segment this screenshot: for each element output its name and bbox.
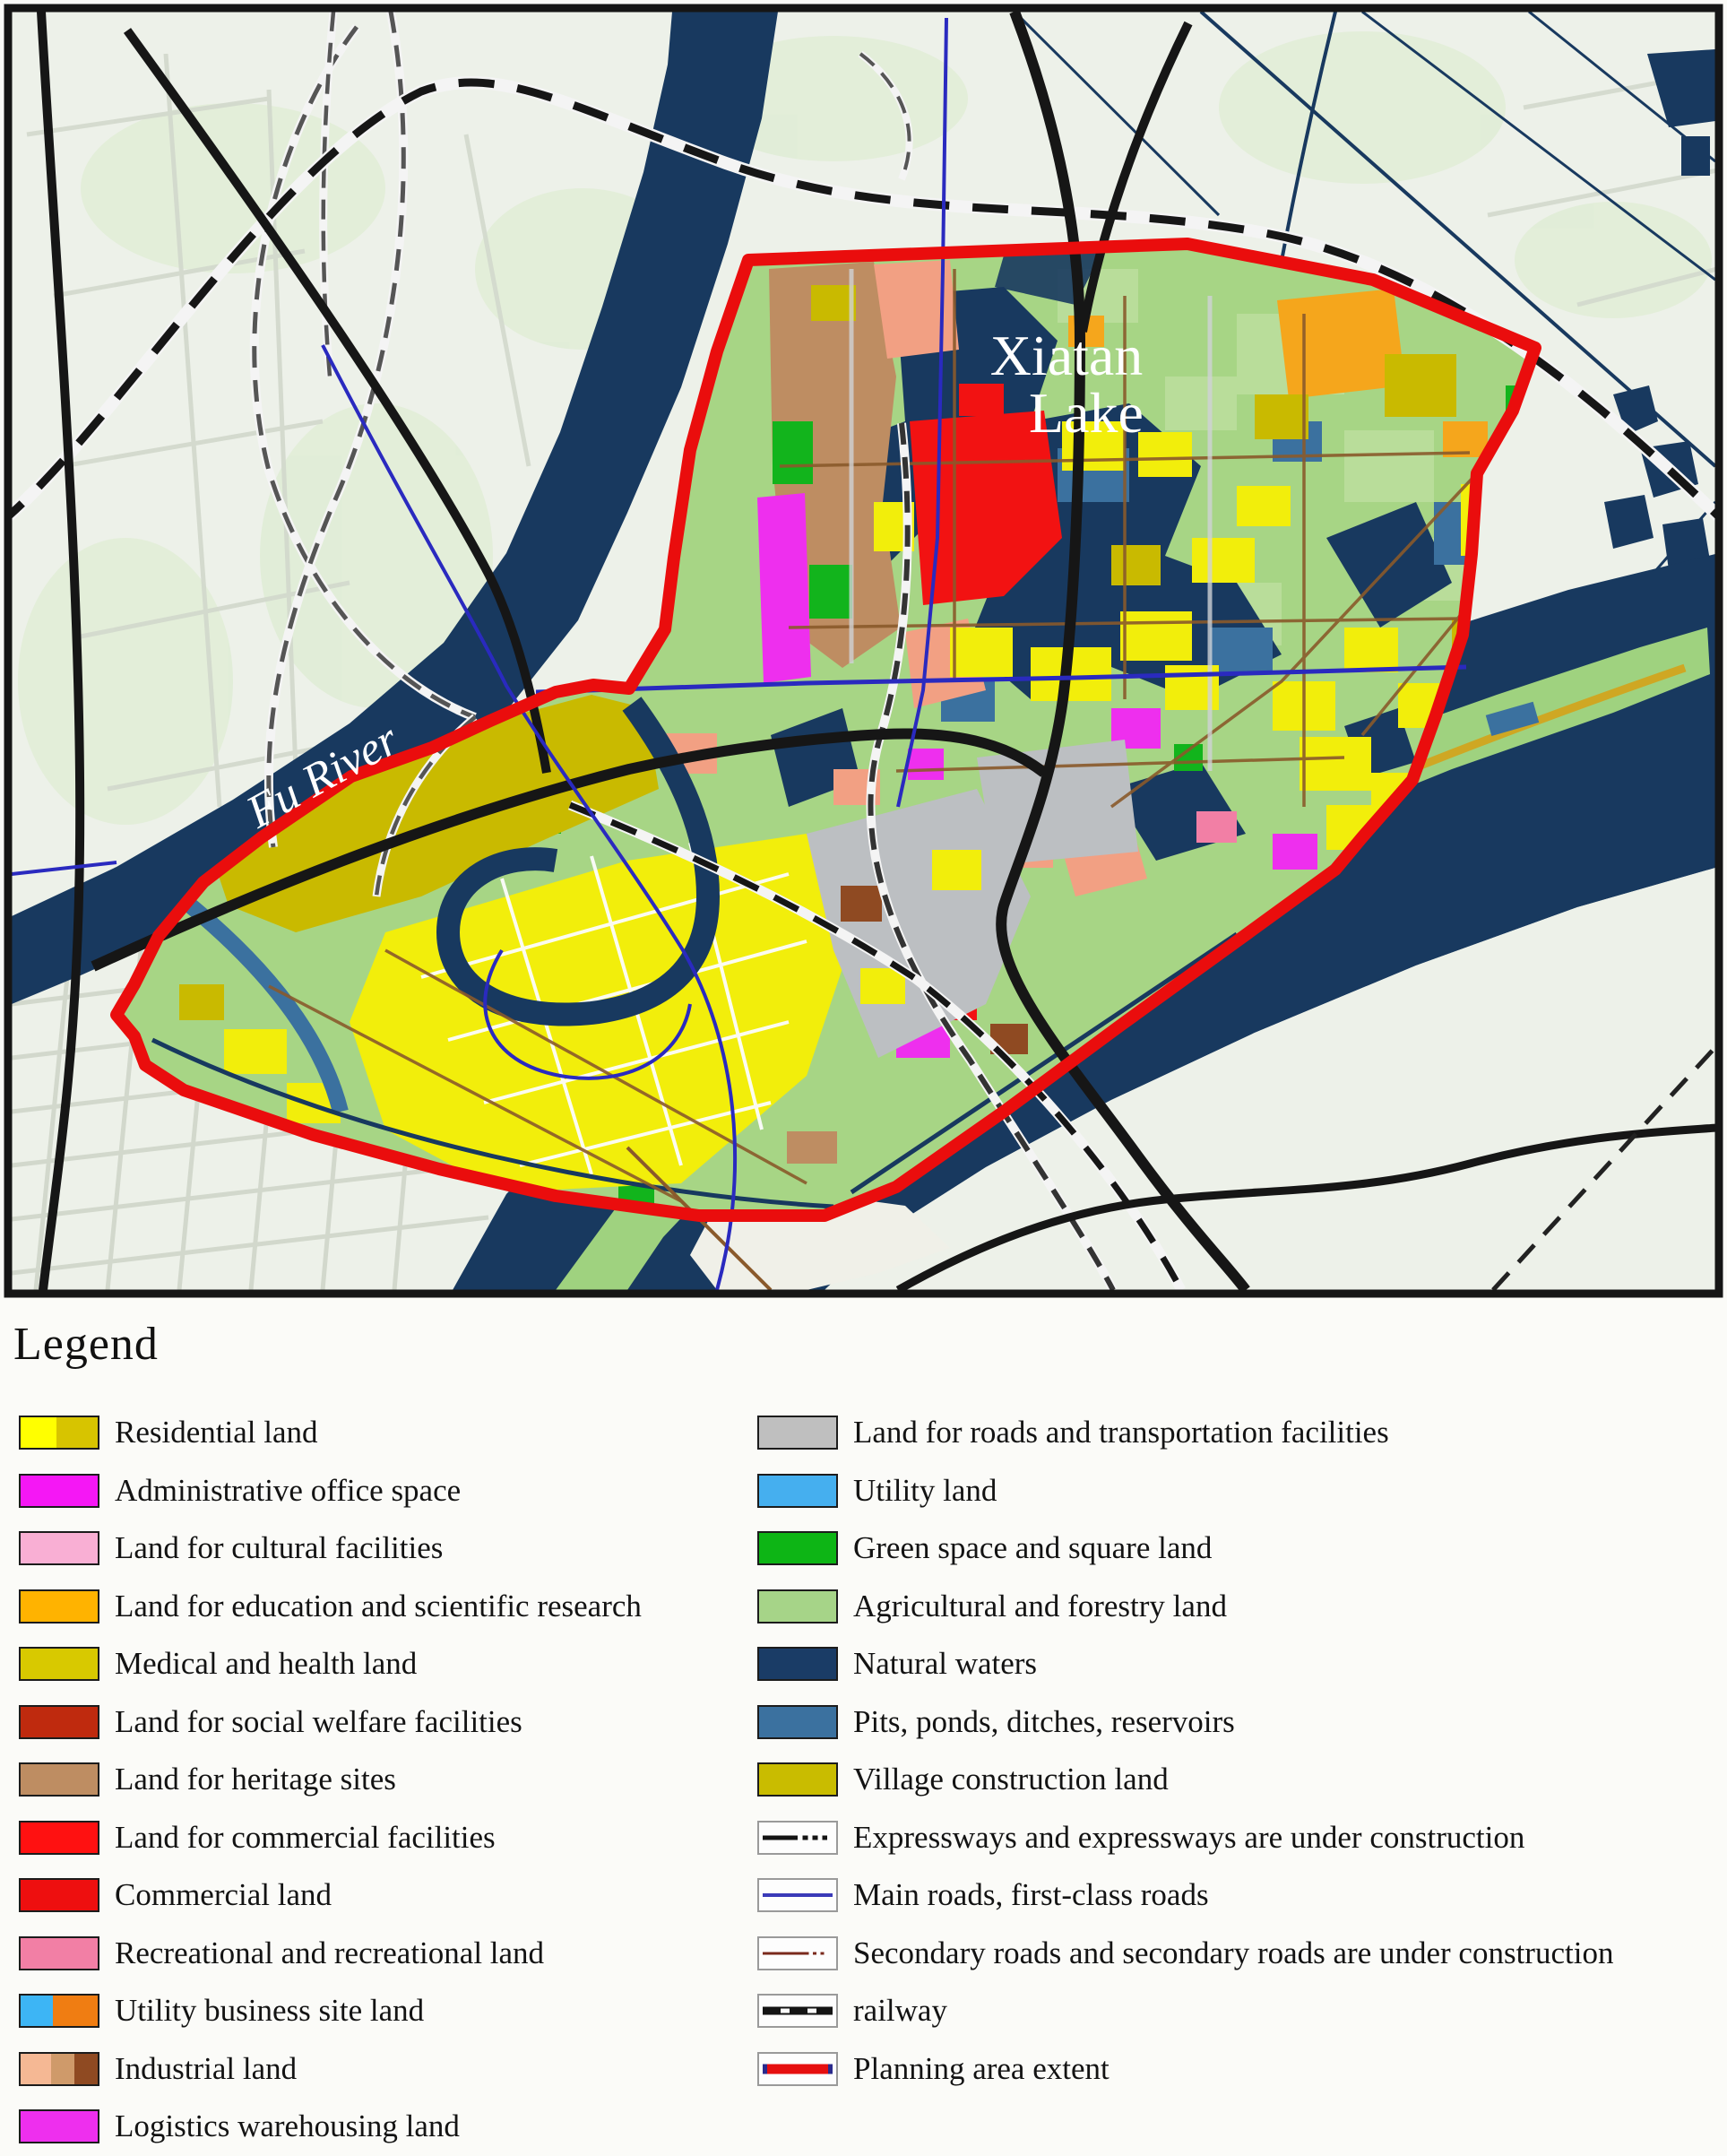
legend-item-natural-waters: Natural waters [757,1635,1613,1693]
swatch-segment [51,2054,74,2084]
expressway-line-icon [763,1835,833,1840]
legend-swatch-green-space-square-land [757,1531,838,1565]
legend-item-expressways: Expressways and expressways are under co… [757,1809,1613,1867]
railway-line-icon [763,2007,833,2015]
legend-swatch-utility-business-site-land [19,1994,99,2028]
legend-label-cultural-facilities: Land for cultural facilities [115,1530,443,1566]
legend-swatch-commercial-facilities [19,1821,99,1855]
legend-item-education-scientific-research: Land for education and scientific resear… [19,1578,642,1636]
legend-label-utility-land: Utility land [853,1473,997,1509]
legend-swatch-social-welfare-facilities [19,1705,99,1739]
legend-item-industrial-land: Industrial land [19,2040,642,2099]
legend-label-industrial-land: Industrial land [115,2051,297,2087]
legend-panel: Legend Residential landAdministrative of… [0,1302,1727,2153]
planning-line-icon [763,2064,833,2074]
legend-swatch-expressways [757,1821,838,1855]
planning-map-figure: Xiatan Lake Fu River [0,0,1727,1302]
planning-map-canvas: Xiatan Lake Fu River [0,0,1727,1302]
legend-swatch-pits-ponds-ditches-reservoirs [757,1705,838,1739]
legend-swatch-secondary-roads [757,1936,838,1970]
legend-label-logistics-warehousing-land: Logistics warehousing land [115,2108,460,2144]
xiatan-lake-label-line2: Lake [1029,381,1144,445]
legend-swatch-cultural-facilities [19,1531,99,1565]
legend-label-heritage-sites: Land for heritage sites [115,1762,396,1797]
legend-label-social-welfare-facilities: Land for social welfare facilities [115,1704,522,1740]
legend-swatch-agricultural-forestry-land [757,1589,838,1623]
secondary-line-icon [763,1952,833,1954]
legend-label-secondary-roads: Secondary roads and secondary roads are … [853,1935,1613,1971]
legend-label-pits-ponds-ditches-reservoirs: Pits, ponds, ditches, reservoirs [853,1704,1235,1740]
legend-item-utility-business-site-land: Utility business site land [19,1982,642,2040]
legend-item-administrative-office-space: Administrative office space [19,1462,642,1520]
legend-item-pits-ponds-ditches-reservoirs: Pits, ponds, ditches, reservoirs [757,1693,1613,1752]
legend-item-village-construction-land: Village construction land [757,1751,1613,1809]
legend-item-roads-transportation-facilities: Land for roads and transportation facili… [757,1404,1613,1462]
legend-item-commercial-facilities: Land for commercial facilities [19,1809,642,1867]
legend-label-village-construction-land: Village construction land [853,1762,1169,1797]
swatch-segment [56,1417,98,1448]
legend-label-railway: railway [853,1993,947,2029]
legend-item-utility-land: Utility land [757,1462,1613,1520]
legend-label-roads-transportation-facilities: Land for roads and transportation facili… [853,1415,1389,1450]
legend-label-administrative-office-space: Administrative office space [115,1473,461,1509]
swatch-segment [53,1996,98,2026]
legend-label-expressways: Expressways and expressways are under co… [853,1820,1524,1856]
legend-item-agricultural-forestry-land: Agricultural and forestry land [757,1578,1613,1636]
legend-swatch-medical-health-land [19,1647,99,1681]
legend-item-commercial-land: Commercial land [19,1866,642,1925]
legend-swatch-administrative-office-space [19,1474,99,1508]
legend-swatch-education-scientific-research [19,1589,99,1623]
legend-label-residential-land: Residential land [115,1415,317,1450]
legend-label-commercial-facilities: Land for commercial facilities [115,1820,496,1856]
legend-item-secondary-roads: Secondary roads and secondary roads are … [757,1925,1613,1983]
legend-item-railway: railway [757,1982,1613,2040]
legend-item-green-space-square-land: Green space and square land [757,1520,1613,1578]
main-line-icon [763,1893,833,1897]
legend-label-education-scientific-research: Land for education and scientific resear… [115,1589,642,1624]
legend-swatch-railway [757,1994,838,2028]
legend-swatch-natural-waters [757,1647,838,1681]
legend-title: Legend [13,1318,159,1371]
legend-label-planning-area-extent: Planning area extent [853,2051,1110,2087]
legend-column-right: Land for roads and transportation facili… [757,1404,1613,2098]
legend-item-recreational-land: Recreational and recreational land [19,1925,642,1983]
swatch-segment [21,2054,51,2084]
legend-swatch-industrial-land [19,2052,99,2086]
legend-label-agricultural-forestry-land: Agricultural and forestry land [853,1589,1227,1624]
legend-label-medical-health-land: Medical and health land [115,1646,417,1682]
legend-label-recreational-land: Recreational and recreational land [115,1935,544,1971]
legend-item-social-welfare-facilities: Land for social welfare facilities [19,1693,642,1752]
swatch-segment [21,1417,56,1448]
xiatan-lake-label-line1: Xiatan [990,324,1144,387]
legend-item-logistics-warehousing-land: Logistics warehousing land [19,2098,642,2156]
legend-item-main-roads: Main roads, first-class roads [757,1866,1613,1925]
legend-swatch-roads-transportation-facilities [757,1416,838,1450]
swatch-segment [74,2054,98,2084]
legend-swatch-logistics-warehousing-land [19,2109,99,2143]
legend-item-cultural-facilities: Land for cultural facilities [19,1520,642,1578]
legend-swatch-village-construction-land [757,1762,838,1797]
map-content: Xiatan Lake Fu River [0,0,1727,1302]
legend-swatch-residential-land [19,1416,99,1450]
legend-item-heritage-sites: Land for heritage sites [19,1751,642,1809]
swatch-segment [21,1996,53,2026]
legend-swatch-utility-land [757,1474,838,1508]
legend-swatch-planning-area-extent [757,2052,838,2086]
legend-label-utility-business-site-land: Utility business site land [115,1993,424,2029]
legend-label-main-roads: Main roads, first-class roads [853,1877,1209,1913]
legend-swatch-commercial-land [19,1878,99,1912]
legend-swatch-main-roads [757,1878,838,1912]
legend-item-residential-land: Residential land [19,1404,642,1462]
legend-item-planning-area-extent: Planning area extent [757,2040,1613,2099]
legend-label-natural-waters: Natural waters [853,1646,1037,1682]
legend-label-commercial-land: Commercial land [115,1877,332,1913]
legend-column-left: Residential landAdministrative office sp… [19,1404,642,2156]
legend-swatch-heritage-sites [19,1762,99,1797]
legend-label-green-space-square-land: Green space and square land [853,1530,1212,1566]
legend-swatch-recreational-land [19,1936,99,1970]
legend-item-medical-health-land: Medical and health land [19,1635,642,1693]
